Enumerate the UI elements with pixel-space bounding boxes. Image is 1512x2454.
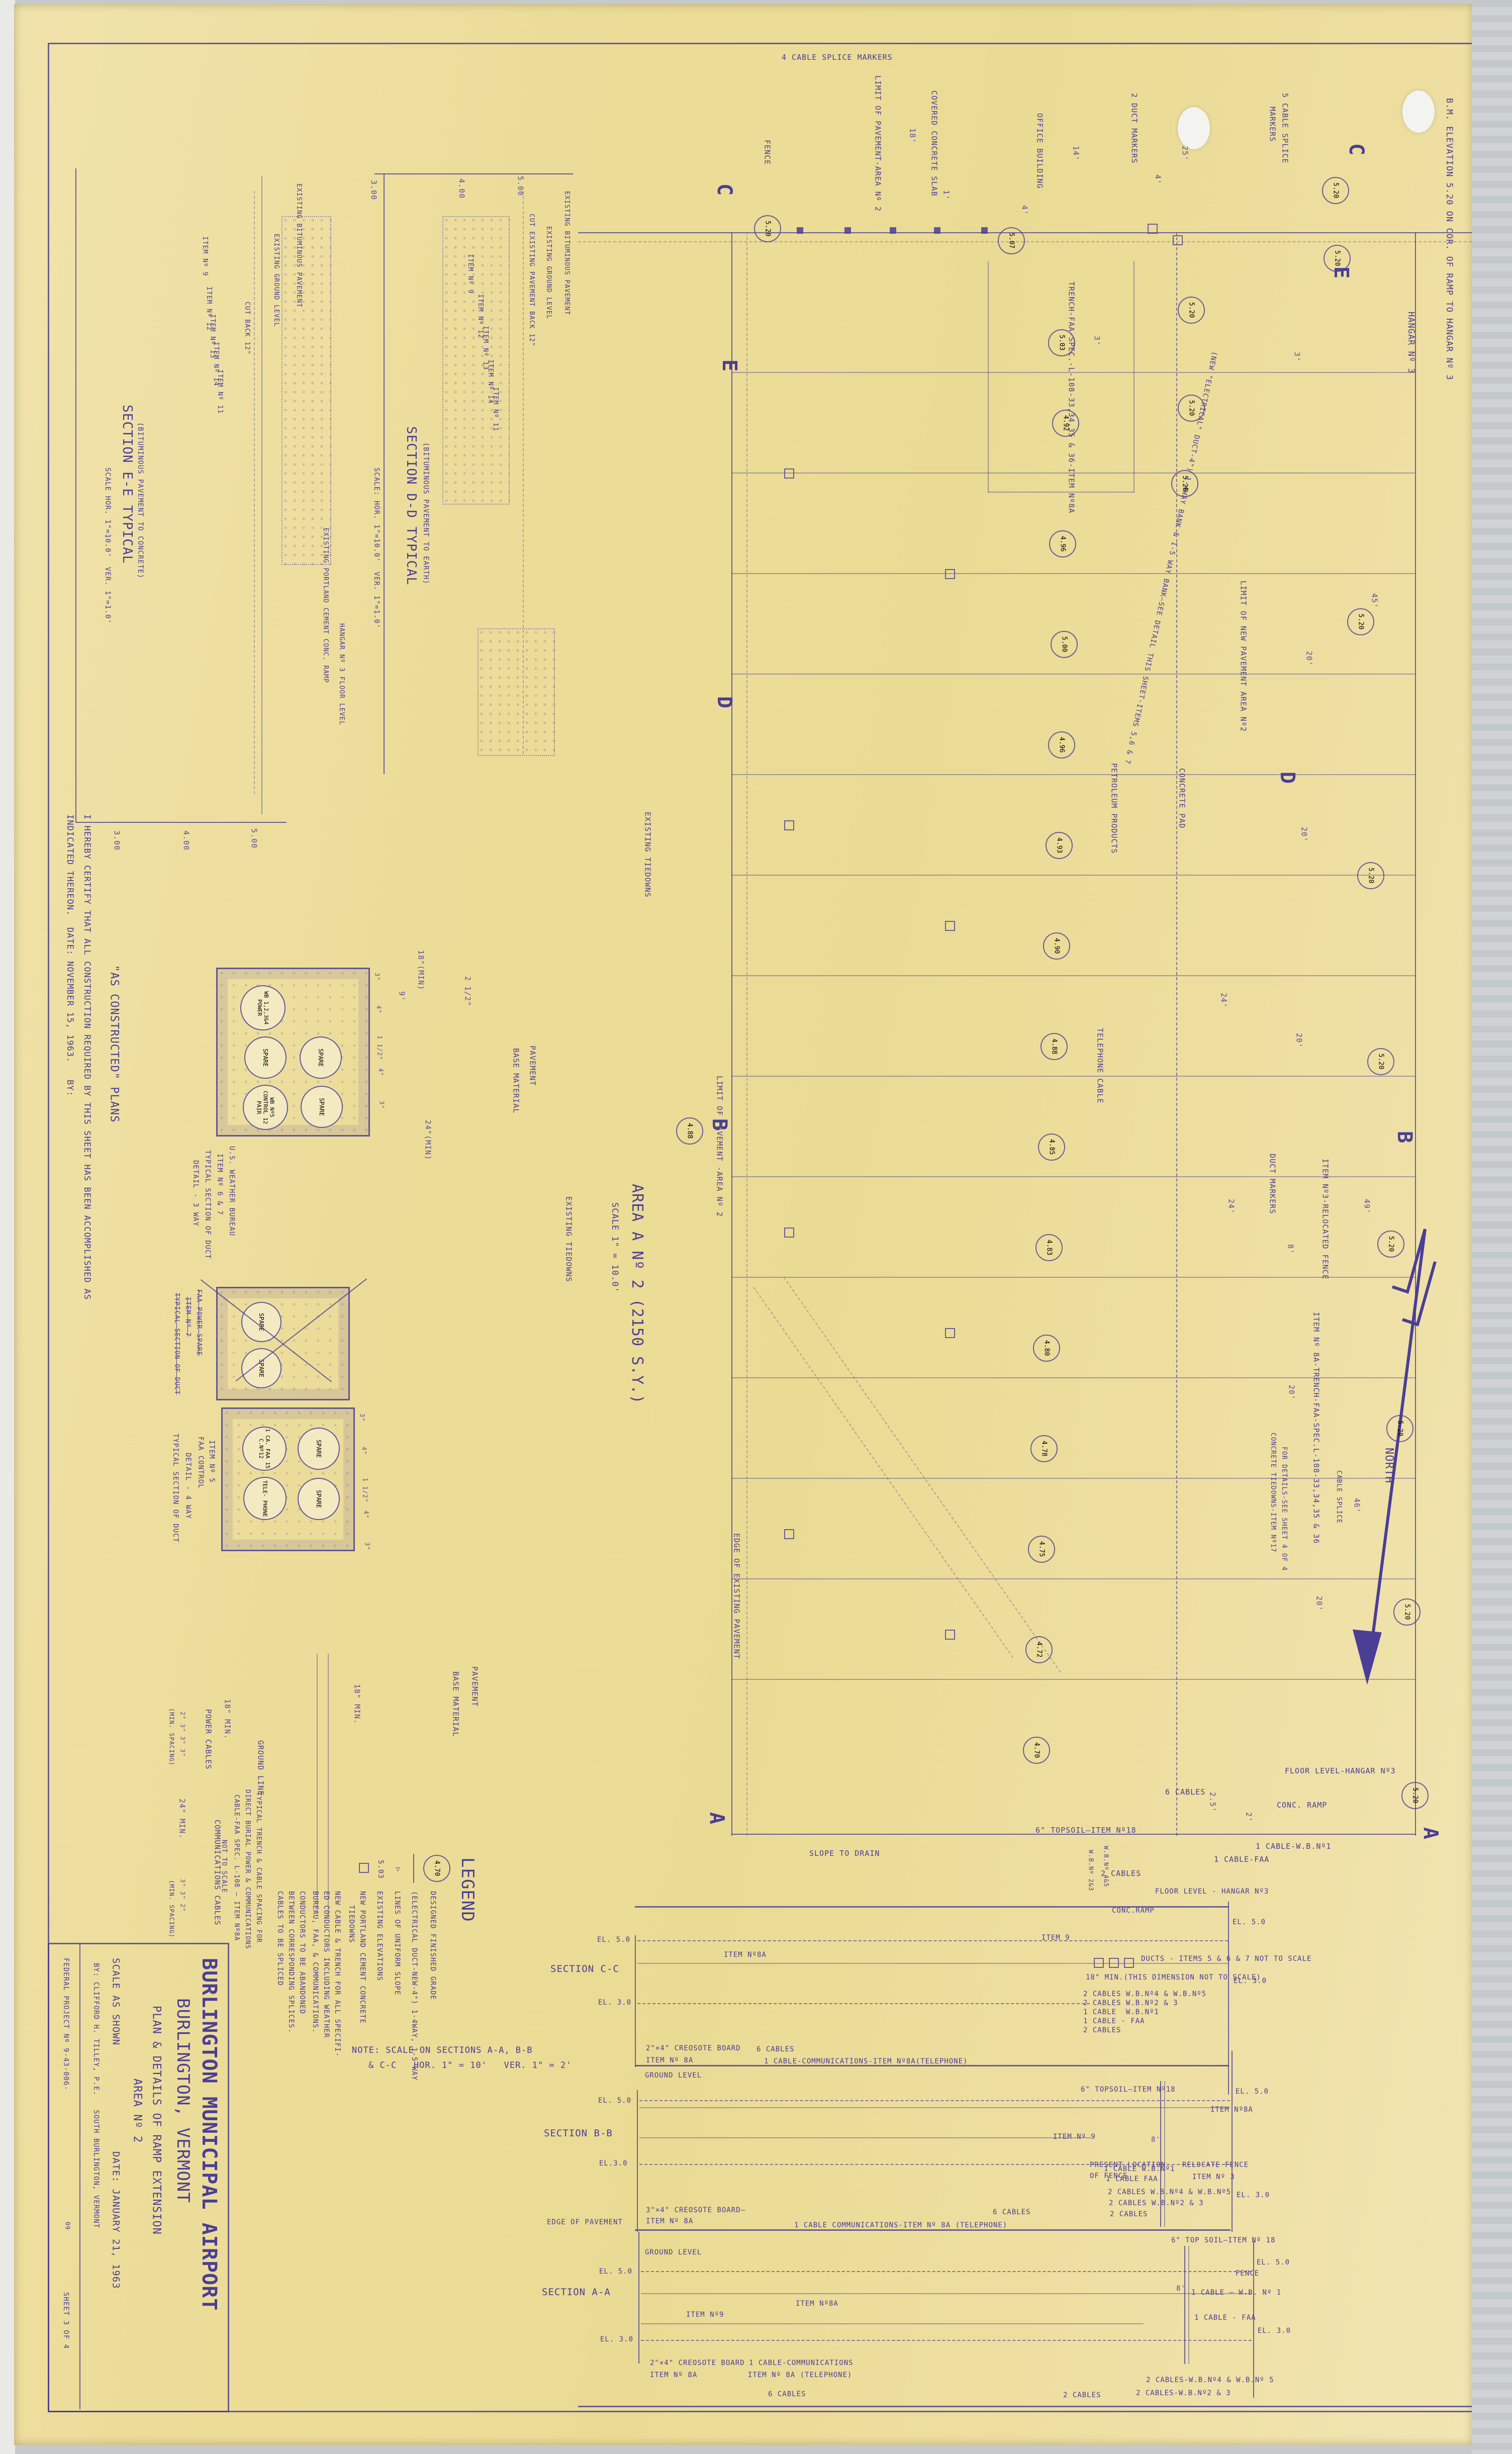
elevation-value: 5.20: [1188, 302, 1195, 318]
elevation-marker: 4.78: [1030, 1435, 1058, 1462]
fc-duct-title1: FAA CONTROL: [196, 1437, 205, 1489]
certification-line1: I HEREBY CERTIFY THAT ALL CONSTRUCTION R…: [81, 814, 92, 1300]
aa-el3-right: EL. 3.0: [1258, 2326, 1291, 2335]
base-material-label-trench: BASE MATERIAL: [450, 1671, 460, 1737]
elevation-value: 5.20: [1332, 182, 1340, 198]
dim-4in: 4": [374, 1005, 383, 1013]
wb-duct-title3: TYPICAL SECTION OF DUCT: [203, 1150, 212, 1259]
elevation-marker: 5.20: [1324, 245, 1351, 272]
north-label: NORTH: [1381, 1448, 1396, 1483]
ee-scale: SCALE HOR. 1"=10.0' VER. 1"=1.0': [103, 467, 112, 624]
pavement-label-trench: PAVEMENT: [469, 1666, 480, 1707]
area-title: AREA A Nº 2 (2150 S.Y.): [627, 1184, 647, 1404]
ee-subtitle: (BITUMINOUS PAVEMENT TO CONCRETE): [136, 422, 145, 579]
elevation-marker: 4.90: [1043, 932, 1070, 960]
bb-el5-left: EL. 5.0: [598, 2096, 631, 2105]
dd-subtitle: (BITUMINOUS PAVEMENT TO EARTH): [421, 442, 430, 585]
cable-splice-marker: [797, 227, 803, 234]
elevation-value: 5.07: [1008, 233, 1015, 248]
wb-duct-title4: DETAIL - 3 WAY: [191, 1160, 200, 1226]
legend-grade-symbol: 4.70: [423, 1855, 450, 1882]
wb-duct-spare: SPARE: [244, 1036, 287, 1079]
elevation-marker: 4.88: [676, 1117, 703, 1145]
dim-18min: 18"(MIN): [416, 950, 426, 990]
dim-8ft: 8': [1285, 1244, 1295, 1254]
dim-3in: 3": [373, 973, 381, 981]
pavement-edge-dashed: [578, 241, 1472, 242]
topsoil-label: 6" TOPSOIL—ITEM Nº18: [1035, 1826, 1137, 1836]
dim-20ft: 20': [1314, 1596, 1324, 1611]
ee-tick-4: 4.00: [181, 830, 191, 851]
ee-bituminous-label: EXISTING BITUMINOUS PAVEMENT: [294, 183, 303, 308]
fc-duct-spare: SPARE: [298, 1478, 340, 1520]
dd-left-line: [384, 173, 385, 774]
splice-markers-note: 4 CABLE SPLICE MARKERS: [782, 53, 893, 63]
elevation-value: 5.20: [1396, 1421, 1404, 1436]
elevation-marker: 5.20: [1367, 1048, 1394, 1075]
grid-row: [731, 774, 1415, 775]
dim-25ft: 25': [1180, 146, 1190, 161]
dd-axis: [374, 173, 573, 174]
title-by: BY: CLIFFORD H. TILLEY, P.E. SOUTH BURLI…: [91, 1963, 101, 2228]
concrete-tiedowns-label: CONCRETE TIEDOWNS-ITEM Nº17: [1268, 1433, 1277, 1552]
bb-relocate-fence: RELOCATE FENCE: [1182, 2160, 1249, 2169]
bb-item8a-right: ITEM Nº8A: [1210, 2105, 1253, 2114]
legend-item-designed-grade: DESIGNED FINISHED GRADE: [428, 1891, 437, 2000]
elevation-marker: 4.83: [1035, 1234, 1063, 1261]
min-spacing-note: (MIN. SPACING): [167, 1708, 175, 1766]
bb-section-label: SECTION B-B: [544, 2127, 613, 2140]
cc-18min-note: 18" MIN.(THIS DIMENSION NOT TO SCALE): [1086, 1973, 1261, 1982]
legend-item-existing-elevations: EXISTING ELEVATIONS: [375, 1891, 384, 1981]
building-outline: [1133, 261, 1135, 493]
dim-3in: 3": [358, 1413, 366, 1422]
duct-label: WB 1,2,3&4 POWER: [256, 986, 269, 1029]
aa-cables-wb45: 2 CABLES-W.B.Nº4 & W.B.Nº 5: [1146, 2376, 1274, 2385]
elevation-marker: 4.88: [1041, 1033, 1068, 1060]
elevation-value: 4.72: [1035, 1642, 1043, 1657]
fence-label: FENCE: [762, 140, 772, 165]
telephone-cable-label: TELEPHONE CABLE: [1095, 1028, 1105, 1103]
cc-el5-left: EL. 5.0: [597, 1935, 630, 1944]
elevation-value: 4.75: [1038, 1541, 1046, 1557]
elevation-value: 5.20: [1181, 476, 1189, 491]
splice-5-label: 5 CABLE SPLICE: [1280, 93, 1290, 163]
title-city: BURLINGTON, VERMONT: [172, 1998, 194, 2203]
title-airport: BURLINGTON MUNICIPAL AIRPORT: [196, 1958, 222, 2311]
legend-item-abandoned1: CONDUCTORS TO BE ABANDONED: [298, 1891, 307, 2014]
cable-wb23-frag: W.B.Nº 2&3: [1087, 1850, 1095, 1891]
bb-profile: [639, 2107, 1230, 2108]
elevation-marker: 4.70: [1023, 1737, 1050, 1764]
dd-gravel-hatch: [442, 216, 510, 505]
aa-el5-dashed: [641, 2271, 1252, 2272]
fc-duct-faa: 1 CA. FAA 15 C.Nº12: [242, 1427, 287, 1471]
dim-3in: 3": [377, 1101, 386, 1109]
title-plan: PLAN & DETAILS OF RAMP EXTENSION: [149, 2006, 163, 2235]
dd-bituminous-label: EXISTING BITUMINOUS PAVEMENT: [562, 191, 571, 315]
dim-4ft: 4': [1153, 174, 1163, 184]
title-date: DATE: JANUARY 21, 1963: [110, 2151, 122, 2289]
six-cables-label: 6 CABLES: [1165, 1787, 1205, 1798]
trench-spec-label: TRENCH-FAA-SPEC.-L-108-33,34,35 & 36-ITE…: [1066, 281, 1076, 513]
dd-ground-label: EXISTING GROUND LEVEL: [544, 226, 552, 319]
elevation-marker: 5.20: [1357, 862, 1384, 889]
dd-title: SECTION D-D TYPICAL: [402, 426, 419, 585]
elevation-marker: 4.96: [1049, 530, 1076, 557]
aa-comm-cable2: ITEM Nº 8A (TELEPHONE): [748, 2371, 852, 2380]
aa-profile: [641, 2293, 1252, 2294]
cut-letter-d: D: [1274, 772, 1300, 784]
elevation-value: 5.20: [764, 221, 772, 236]
petroleum-products-label: PETROLEUM PRODUCTS: [1109, 763, 1119, 854]
elevation-value: 4.78: [1041, 1441, 1048, 1456]
duct-markers-label: DUCT MARKERS: [1267, 1154, 1277, 1214]
duct-label: SPARE: [318, 1098, 325, 1116]
certification-line2: INDICATED THEREON. DATE: NOVEMBER 15, 19…: [64, 814, 75, 1097]
ee-axis: [75, 822, 287, 823]
tiedown-square: [784, 468, 794, 479]
elevation-value: 5.20: [1357, 614, 1365, 629]
trench-caption4: NOT TO SCALE: [219, 1840, 228, 1893]
ee-pcc-ramp-label: EXISTING PORTLAND CEMENT CONC. RAMP: [321, 528, 329, 683]
tiedown-square: [945, 569, 955, 579]
elevation-marker: 5.07: [998, 227, 1025, 254]
tiedown-square: [945, 921, 955, 931]
concrete-pad-label: CONCRETE PAD: [1177, 768, 1187, 828]
cable-splice-marker: [890, 227, 896, 234]
duct-label: SPARE: [317, 1049, 324, 1067]
legend-note1: NOTE: SCALE ON SECTIONS A-A, B-B: [352, 2045, 533, 2056]
legend-item-pcc-tiedowns2: TIEDOWNS: [347, 1905, 356, 1943]
relocated-fence-label: ITEM Nº3-RELOCATED FENCE: [1320, 1159, 1330, 1280]
dim-4in: 4": [362, 1511, 370, 1519]
legend-item-new-cable3: BUREAU, FAA, & COMMUNICATIONS.: [311, 1891, 320, 2033]
limit-new-pavement-label: LIMIT OF NEW PAVEMENT AREA Nº2: [1238, 581, 1248, 732]
edge-existing-pavement-label: EDGE OF EXISTING PAVEMENT: [731, 1533, 741, 1659]
elevation-value: 5.20: [1387, 1236, 1395, 1252]
cable-splice-marker: [981, 227, 988, 234]
cc-cable5: 2 CABLES: [1083, 2026, 1121, 2035]
aa-cables-wb23: 2 CABLES-W.B.Nº2 & 3: [1136, 2389, 1231, 2398]
bb-cables-wb23: 2 CABLES W.B.Nº2 & 3: [1109, 2199, 1204, 2208]
dim-24ft: 24': [1218, 993, 1228, 1008]
fc-duct-spare: SPARE: [298, 1428, 340, 1470]
bb-topsoil: 6" TOPSOIL—ITEM Nº18: [1081, 2085, 1176, 2094]
legend-grade-value: 4.70: [433, 1860, 441, 1876]
elevation-marker: 4.75: [1028, 1536, 1055, 1563]
aa-creosote2: ITEM Nº 8A: [650, 2371, 697, 2380]
legend-item-abandoned3: CABLES TO BE SPLICED: [275, 1891, 285, 1986]
trench-caption1: TYPICAL TRENCH & CABLE SPACING FOR: [254, 1792, 262, 1943]
covered-slab-label: COVERED CONCRETE SLAB: [929, 90, 939, 197]
fp-duct-title3: TYPICAL SECTION OF DUCT: [172, 1293, 180, 1395]
elevation-value: 4.93: [1056, 837, 1063, 853]
elevation-value: 4.70: [1033, 1742, 1041, 1758]
elevation-value: 4.83: [1046, 1240, 1053, 1255]
aa-el5-left: EL. 5.0: [599, 2267, 632, 2276]
aa-comm-cable1: 1 CABLE-COMMUNICATIONS: [749, 2358, 853, 2368]
wb-duct-power: WB 1,2,3&4 POWER: [240, 985, 286, 1030]
bb-el3-left: EL.3.0: [599, 2159, 628, 2168]
duct-label: SPARE: [315, 1440, 322, 1458]
elevation-value: 4.88: [686, 1123, 694, 1139]
dim-1ft: 1': [941, 190, 951, 200]
fc-duct-title4: DETAIL - 4 WAY: [183, 1453, 193, 1519]
trench-line: [317, 1654, 318, 1915]
cc-ducts-note: DUCTS - ITEMS 5 & 6 & 7 NOT TO SCALE: [1141, 1954, 1311, 1963]
aa-fence-line: [1184, 2246, 1185, 2364]
dd-tick-4: 4.00: [456, 178, 466, 199]
wb-duct-section: [216, 968, 370, 1137]
scanned-drawing-sheet: 4 CABLE SPLICE MARKERS 18' 14' 1' 4' 3' …: [0, 0, 1512, 2454]
elevation-value: 4.88: [1051, 1039, 1058, 1054]
duct-marker: [1148, 224, 1158, 234]
cc-duct-symbol: [1094, 1958, 1104, 1968]
trench-caption2: DIRECT BURIAL POWER & COMMUNICATIONS: [243, 1789, 251, 1949]
title-block-divider: [79, 1943, 80, 2409]
legend-item-abandoned2: BETWEEN CORRESPONDING SPLICES.: [287, 1891, 296, 2033]
elevation-marker: 5.20: [1393, 1598, 1421, 1626]
duct-marker: [1173, 235, 1183, 245]
punch-hole: [1402, 90, 1435, 133]
conc-ramp-label: CONC. RAMP: [1277, 1801, 1327, 1811]
grid-row: [731, 573, 1415, 574]
elevation-value: 5.20: [1377, 1054, 1385, 1069]
cc-creosote2: ITEM Nº 8A: [646, 2056, 693, 2065]
cc-item8a: ITEM Nº8A: [724, 1950, 767, 1959]
grid-row: [731, 975, 1415, 976]
dim-14ft: 14': [1071, 146, 1081, 161]
elevation-marker: 5.20: [1386, 1415, 1413, 1442]
dim-3in: 3": [363, 1542, 371, 1550]
cut-letter-e: E: [716, 359, 742, 372]
elevation-value: 5.20: [1403, 1604, 1411, 1620]
bb-el5-right: EL. 5.0: [1236, 2087, 1269, 2096]
faa-control-duct-section: [221, 1407, 355, 1551]
see-sheet-label: FOR DETAILS-SEE SHEET 4 OF 4: [1279, 1447, 1288, 1571]
dd-cut-pavement-label: CUT EXISTING PAVEMENT BACK 12": [527, 214, 535, 347]
grid-row: [731, 875, 1415, 876]
elevation-value: 5.00: [1061, 636, 1068, 652]
legend-item-pcc-tiedowns: NEW PORTLAND CEMENT CONCRETE: [358, 1891, 367, 2024]
min-spacing-note2: (MIN. SPACING): [167, 1880, 175, 1938]
fc-duct-title3: TYPICAL SECTION OF DUCT: [171, 1434, 180, 1543]
tiedown-square: [784, 1228, 794, 1238]
floor-level-label: FLOOR LEVEL-HANGAR Nº3: [1285, 1766, 1396, 1776]
aa-cable-wb1: 1 CABLE — W.B. Nº 1: [1191, 2288, 1281, 2297]
elevation-value: 4.92: [1062, 415, 1070, 431]
aa-el3-dashed: [641, 2340, 1252, 2341]
aa-ground-level: GROUND LEVEL: [645, 2248, 702, 2257]
dim-18ft: 18': [907, 128, 917, 143]
limit-of-pavement-label: LIMIT OF PAVEMENT-AREA Nº 2: [873, 75, 883, 212]
fc-duct-title2: ITEM Nº 5: [207, 1440, 216, 1483]
punch-hole: [1178, 107, 1210, 149]
cc-el5-right: EL. 5.0: [1233, 1918, 1266, 1927]
elevation-value: 5.20: [1367, 868, 1375, 883]
cc-creosote: 2"×4" CREOSOTE BOARD: [646, 2044, 741, 2053]
cable-splice-marker: [844, 227, 851, 234]
grid-row: [731, 674, 1415, 675]
cc-section-label: SECTION C-C: [550, 1963, 619, 1975]
aa-el3-left: EL. 3.0: [600, 2335, 633, 2344]
cut-letter-d: D: [711, 696, 737, 709]
elevation-value: 4.96: [1059, 536, 1067, 551]
cc-comm-cable: 1 CABLE-COMMUNICATIONS-ITEM Nº8A(TELEPHO…: [764, 2057, 968, 2066]
legend-duct-symbol: [413, 1854, 414, 1883]
bb-cable-wb1: 1 CABLE W.B.Nº1: [1104, 2164, 1175, 2174]
existing-tiedowns-label: EXISTING TIEDOWNS: [563, 1196, 574, 1282]
ee-item9: ITEM Nº 9: [200, 236, 209, 276]
two-cables-label: 2 CABLES: [1101, 1869, 1141, 1879]
title-area: AREA Nº 2: [130, 2079, 144, 2143]
dim-9ft: 9': [397, 991, 407, 1001]
grid-row: [731, 1277, 1415, 1278]
elevation-value: 5.20: [1188, 400, 1195, 416]
ee-item11: ITEM Nº 11: [215, 369, 224, 414]
elevation-marker: 5.03: [1048, 329, 1075, 356]
cc-item9: ITEM 9: [1042, 1933, 1070, 1942]
cc-el3-left: EL. 3.0: [598, 1998, 631, 2007]
dim-18min-trench: 18" MIN.: [222, 1699, 232, 1739]
elevation-marker: 4.80: [1033, 1335, 1060, 1362]
dd-gravel-hatch: [478, 628, 555, 756]
fp-duct-title2: ITEM Nº 7: [183, 1297, 192, 1337]
ee-tick-3: 3.00: [112, 830, 122, 851]
dd-item11: ITEM Nº 11: [491, 387, 499, 431]
dd-tick-3: 3.00: [368, 180, 379, 200]
dim-2ft: 2': [1244, 1812, 1254, 1822]
duct-label: SPARE: [315, 1490, 322, 1508]
elevation-value: 4.90: [1053, 938, 1061, 954]
as-constructed-stamp: "AS CONSTRUCTED" PLANS: [107, 965, 121, 1122]
dim-20ft: 20': [1294, 1033, 1304, 1048]
bb-cables-wb45: 2 CABLES W.B.Nº4 & W.B.Nº5: [1108, 2188, 1231, 2197]
fp-duct-spare: SPARE: [241, 1348, 281, 1388]
bb-dim-8ft: 8': [1151, 2135, 1161, 2144]
legend-item-new-cable1: NEW CABLE & TRENCH FOR ALL SPECIFI-: [333, 1891, 342, 2057]
legend-item-uniform-slope: LINES OF UNIFORM SLOPE: [393, 1891, 402, 1995]
benchmark-note: B.M. ELEVATION 5.20 ON COR. OF RAMP TO H…: [1444, 98, 1455, 381]
cc-el5-dashed: [637, 1940, 1228, 1941]
elevation-marker: 4.92: [1052, 410, 1079, 437]
splice-5-label2: MARKERS: [1267, 107, 1277, 142]
elevation-marker: 5.20: [1322, 177, 1349, 204]
base-material-label: BASE MATERIAL: [511, 1048, 521, 1113]
bb-6cables: 6 CABLES: [993, 2208, 1030, 2217]
title-federal-project: FEDERAL PROJECT Nº 9-43-006-: [61, 1958, 70, 2091]
cc-left-axis: [635, 1935, 636, 2067]
ee-ground-dashed: [254, 191, 255, 794]
cc-cable2: 2 CABLES W.B.Nº2 & 3: [1083, 1999, 1178, 2008]
ee-gravel-hatch: [281, 216, 331, 565]
elevation-value: 4.85: [1048, 1139, 1056, 1155]
fc-duct-telephone: TELE- PHONE: [243, 1477, 287, 1520]
legend-slope-symbol: ▷: [394, 1867, 403, 1872]
cable-splice-marker: [934, 227, 940, 234]
aa-edge-of-pavement: EDGE OF PAVEMENT: [547, 2218, 623, 2227]
elevation-value: 4.96: [1058, 737, 1066, 752]
aa-section-label: SECTION A-A: [542, 2286, 611, 2299]
aa-fence: FENCE: [1236, 2269, 1259, 2278]
limit-of-pavement-label: LIMIT OF PAVEMENT -AREA Nº 2: [714, 1076, 724, 1217]
cut-letter-a: A: [1417, 1827, 1444, 1840]
grid-row: [731, 1076, 1415, 1077]
dim-1-5in: 1 1/2": [375, 1035, 384, 1060]
cc-floor-level: FLOOR LEVEL - HANGAR Nº3: [1155, 1887, 1269, 1896]
dim-24min: 24"(MIN): [423, 1120, 433, 1160]
dim-20ft: 20': [1299, 827, 1309, 842]
dim-18min-trench2: 18" MIN.: [352, 1684, 362, 1724]
tiedown-square: [784, 820, 794, 830]
bb-profile2: [639, 2137, 1092, 2138]
power-cables-label: POWER CABLES: [203, 1709, 213, 1769]
elevation-marker: 4.72: [1025, 1636, 1053, 1663]
cut-letter-b: B: [1391, 1131, 1417, 1144]
fp-duct-title1: FAA POWER-SPARE: [194, 1289, 203, 1356]
cut-letter-a: A: [704, 1812, 730, 1825]
wb-duct-title1: U.S. WEATHER BUREAU: [227, 1146, 236, 1236]
elevation-marker: 4.96: [1048, 731, 1075, 759]
elevation-marker: 4.85: [1038, 1134, 1065, 1161]
ee-left-line: [75, 168, 76, 822]
bb-2cables: 2 CABLES: [1110, 2210, 1148, 2219]
cut-letter-c: C: [1343, 143, 1369, 156]
dim-20ft: 20': [1304, 651, 1314, 666]
elevation-marker: 5.20: [1171, 470, 1198, 497]
cut-letter-c: C: [711, 183, 737, 196]
aa-2cables: 2 CABLES: [1063, 2391, 1101, 2400]
area-scale: SCALE 1" = 10.0': [609, 1202, 620, 1293]
aa-topsoil: 6" TOP SOIL—ITEM Nº 18: [1171, 2236, 1275, 2245]
fp-duct-spare: SPARE: [241, 1302, 281, 1342]
cc-profile: [637, 1963, 1228, 1964]
bb-right-axis: [1232, 2051, 1233, 2232]
duct-label: WB Nº5 CONTROL 12 PAIR: [256, 1086, 275, 1129]
title-sheet: SHEET 3 OF 4: [61, 2292, 70, 2349]
cc-conc-ramp: CONC.RAMP: [1112, 1906, 1155, 1915]
legend-existing-elev-symbol: 5.03: [376, 1860, 385, 1879]
bb-comm-cable: 1 CABLE COMMUNICATIONS-ITEM Nº 8A (TELEP…: [794, 2221, 1007, 2230]
title-federal-suffix: 09: [63, 2222, 71, 2230]
duct-markers-2-label: 2 DUCT MARKERS: [1129, 93, 1139, 163]
building-outline: [988, 261, 989, 493]
power-spacing: 2" 3" 3" 3": [178, 1712, 186, 1757]
bb-el5-dashed: [639, 2100, 1230, 2101]
bb-ground-level: GROUND LEVEL: [645, 2071, 702, 2080]
bb-el3-right: EL. 3.0: [1237, 2191, 1270, 2200]
grid-row: [731, 1176, 1415, 1177]
legend-tiedown-symbol: [359, 1863, 369, 1873]
bb-creosote: 3"×4" CREOSOTE BOARD—: [646, 2206, 745, 2215]
elevation-marker: 5.20: [1178, 395, 1205, 422]
wb-duct-title2: ITEM Nº 6 & 7: [215, 1154, 224, 1215]
elevation-marker: 5.20: [1377, 1231, 1404, 1258]
bb-creosote2: ITEM Nº 8A: [646, 2217, 693, 2226]
dim-24ft: 24': [1226, 1199, 1236, 1214]
wb-duct-spare: SPARE: [300, 1036, 342, 1079]
cable-wb45-frag: W.B.Nº 4&5: [1102, 1846, 1110, 1887]
dim-2-5in: 2 1/2": [462, 976, 472, 1006]
cc-cable4: 1 CABLE - FAA: [1083, 2017, 1145, 2026]
ground-line-label: GROUND LINE: [255, 1740, 265, 1796]
trench-caption3: CABLE-FAA SPEC. L-108 — ITEM Nº8A: [232, 1795, 240, 1941]
legend-item-new-cable2: ED CONDUCTORS INCLUDING WEATHER: [322, 1891, 331, 2038]
elevation-marker: 5.20: [1347, 608, 1374, 635]
office-building-label: OFFICE BUILDING: [1034, 113, 1045, 188]
dd-scale: SCALE: HOR. 1"=10.0' VER. 1"=1.0': [372, 467, 381, 629]
